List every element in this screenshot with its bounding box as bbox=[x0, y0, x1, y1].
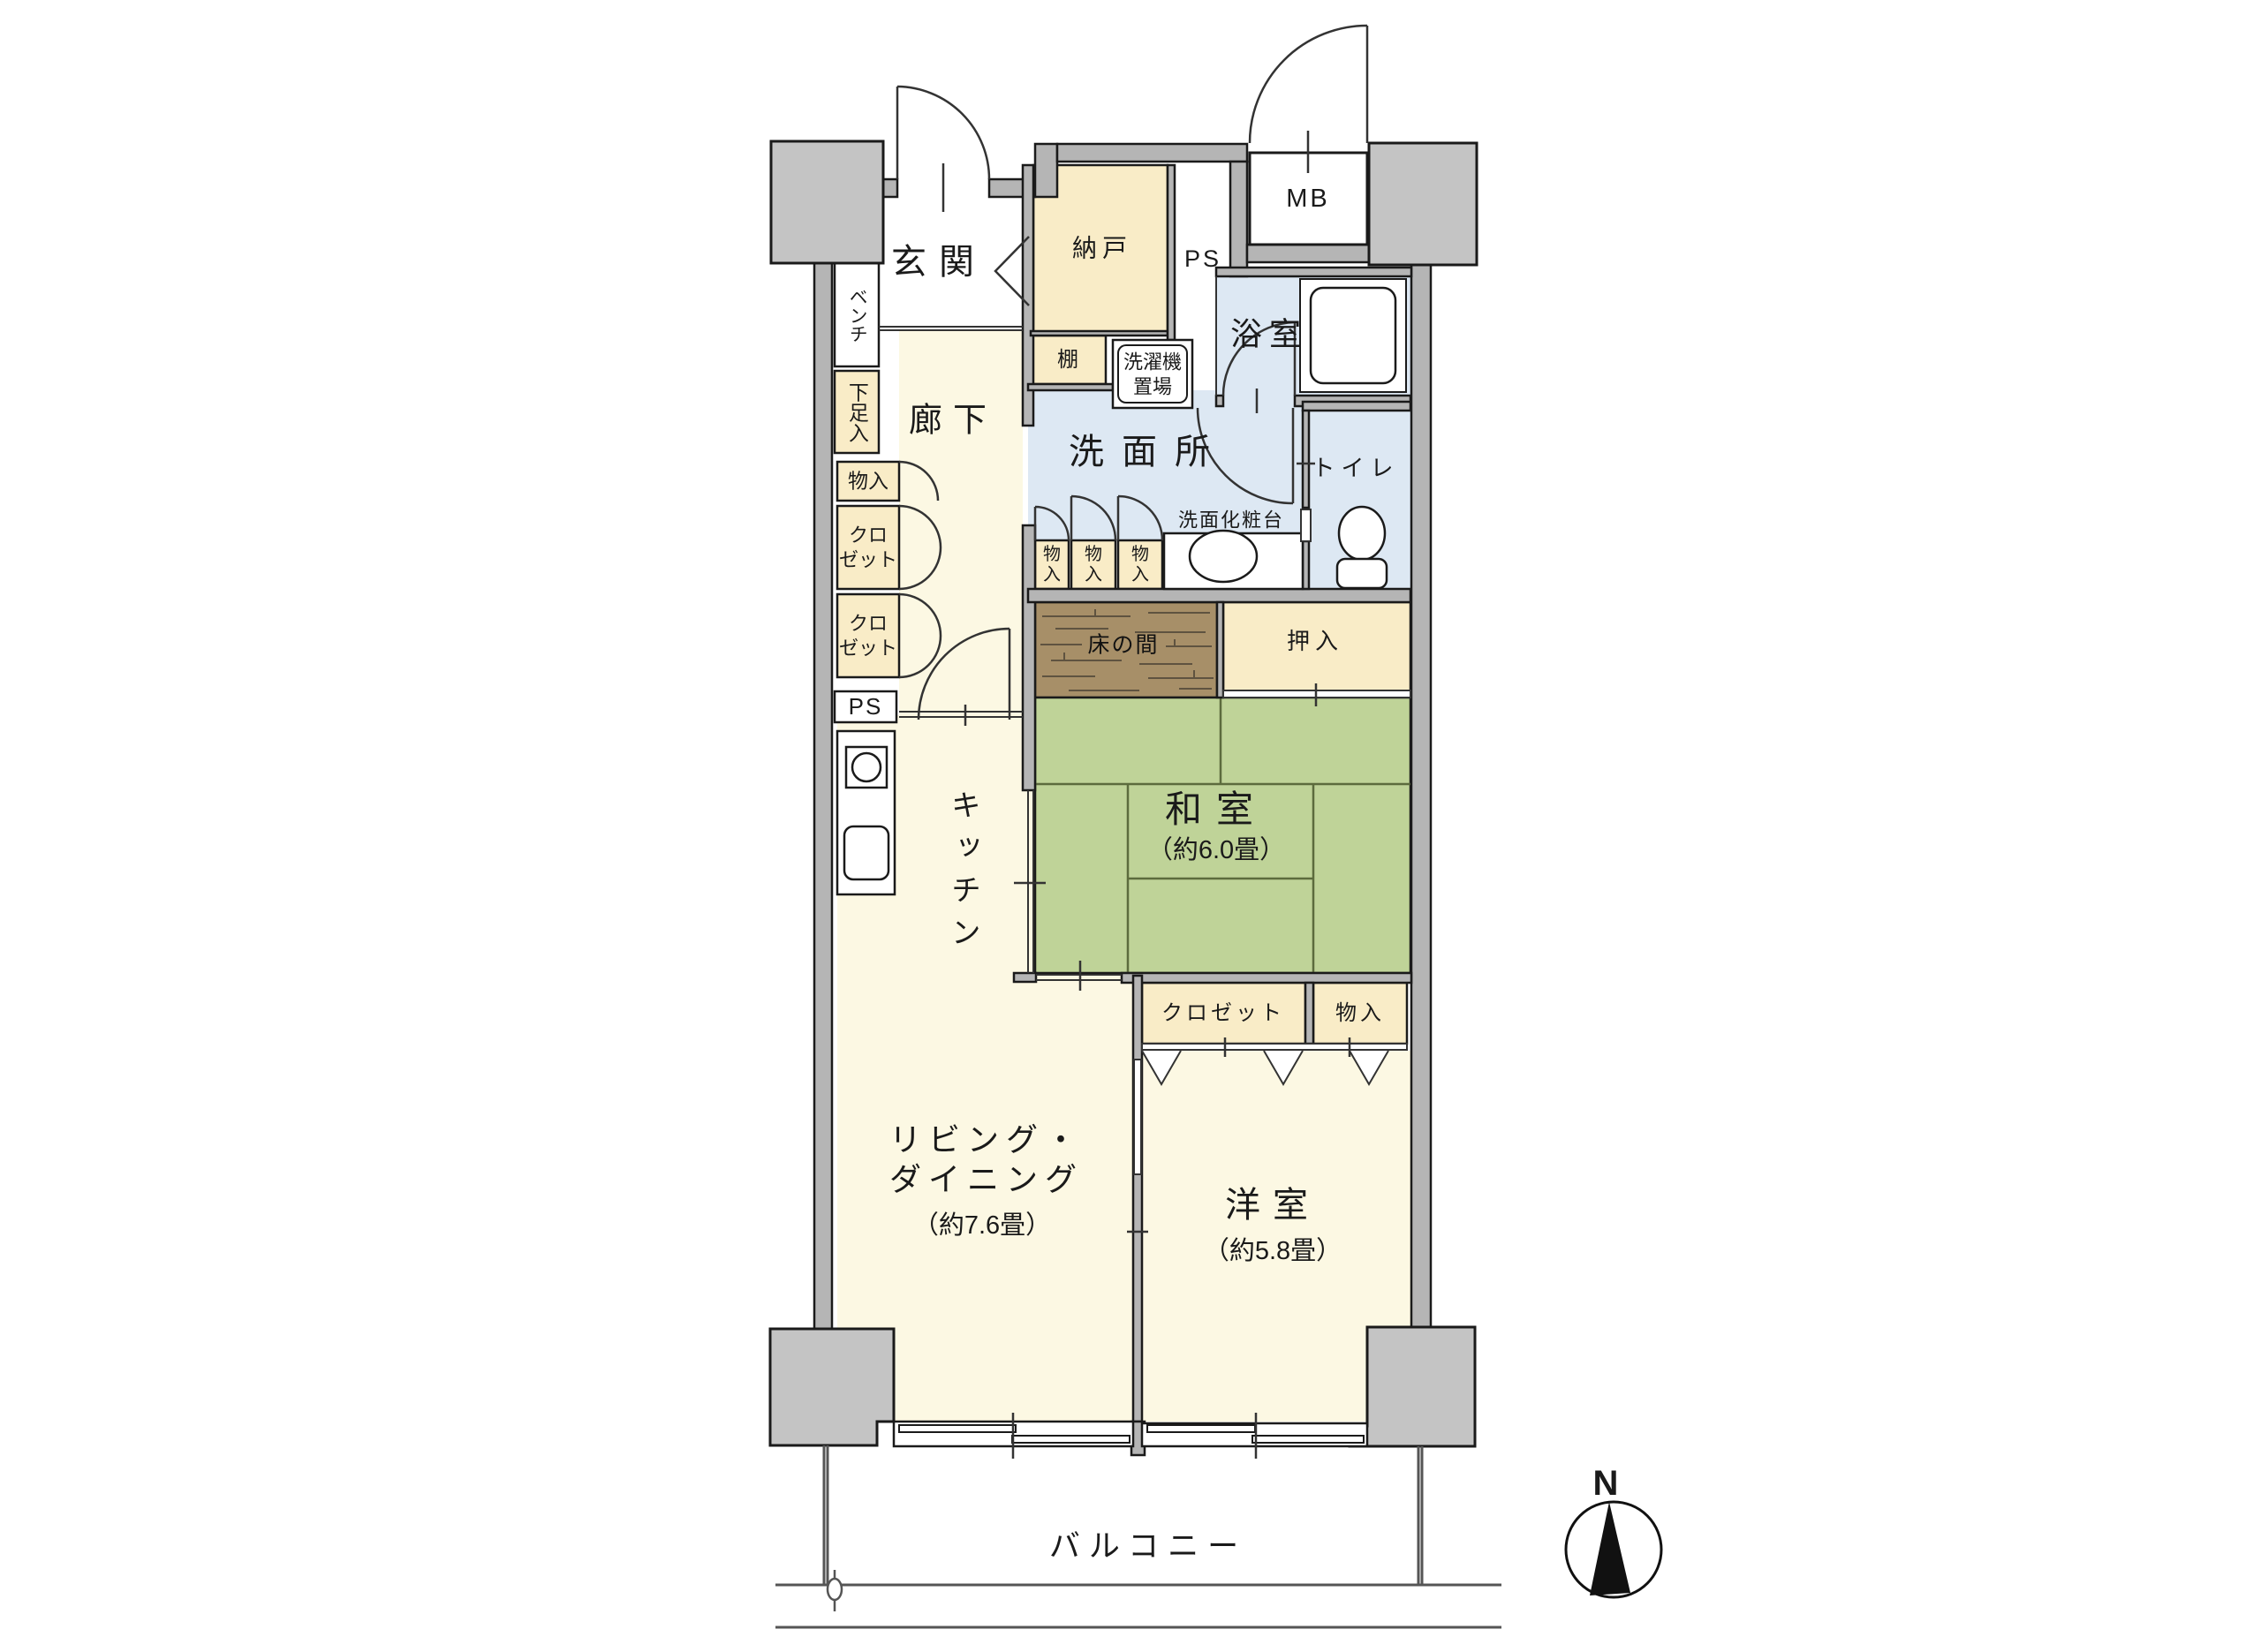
washing-machine-area bbox=[1113, 340, 1192, 408]
pillar-bottom-left bbox=[770, 1329, 894, 1445]
ps-left-box bbox=[835, 691, 896, 722]
floor-plan-drawing bbox=[0, 0, 2261, 1652]
kitchen-sink-icon bbox=[844, 826, 889, 879]
pillar-top-left bbox=[771, 141, 883, 263]
bathtub bbox=[1300, 279, 1406, 392]
balcony-outline bbox=[775, 1445, 1501, 1627]
vanity-counter bbox=[1164, 531, 1303, 589]
compass-icon bbox=[1566, 1502, 1661, 1597]
genkan-step bbox=[879, 327, 1023, 330]
toilet-door bbox=[1301, 509, 1311, 541]
balcony-drain-icon bbox=[828, 1570, 842, 1611]
sink-icon bbox=[1190, 531, 1257, 582]
pillar-bottom-right bbox=[1350, 1327, 1475, 1446]
entrance-door bbox=[897, 87, 989, 212]
toilet-fixture-icon bbox=[1337, 507, 1387, 588]
meter-box-door bbox=[1250, 26, 1367, 173]
kitchen-counter bbox=[837, 731, 895, 894]
pillar-top-right bbox=[1369, 143, 1477, 265]
floor-plan: 玄関 納戸 PS MB 浴室 洗濯機 置場 棚 洗面所 洗面化粧台 トイレ 廊下… bbox=[0, 0, 2261, 1652]
